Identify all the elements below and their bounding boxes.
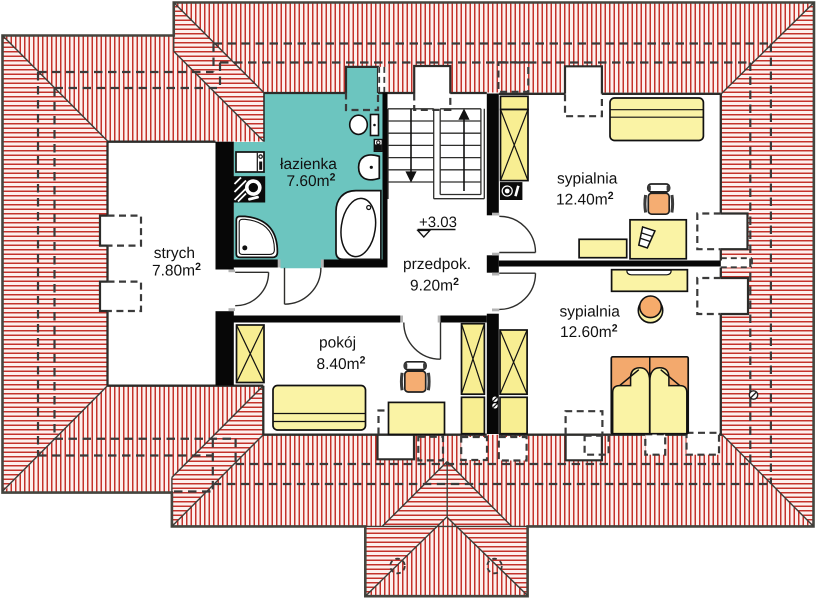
svg-text:+3.03: +3.03 <box>419 214 457 231</box>
svg-text:przedpok.: przedpok. <box>403 256 471 273</box>
svg-text:pokój: pokój <box>319 335 356 352</box>
svg-text:12.40m2: 12.40m2 <box>556 190 614 209</box>
svg-text:7.60m2: 7.60m2 <box>287 172 336 191</box>
svg-text:7.80m2: 7.80m2 <box>152 261 201 280</box>
svg-text:9.20m2: 9.20m2 <box>410 276 459 295</box>
svg-text:12.60m2: 12.60m2 <box>560 323 618 342</box>
svg-text:sypialnia: sypialnia <box>560 304 621 321</box>
svg-text:strych: strych <box>154 245 195 262</box>
svg-text:łazienka: łazienka <box>280 156 337 173</box>
svg-text:8.40m2: 8.40m2 <box>317 355 366 374</box>
svg-text:sypialnia: sypialnia <box>557 171 618 188</box>
